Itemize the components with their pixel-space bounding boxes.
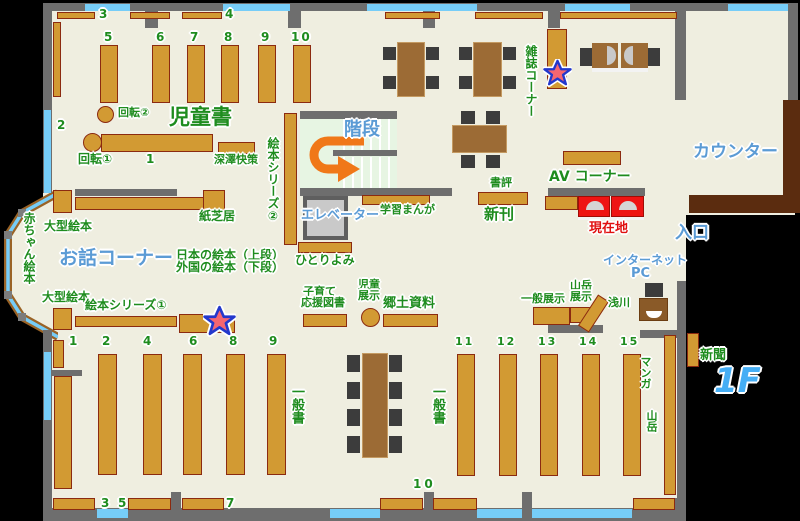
shelf-number: 9 (261, 31, 269, 43)
shelf-number: 6 (189, 335, 197, 347)
shelf-label-ippan-tenji: 一般展示 (521, 293, 565, 304)
pillar (171, 492, 181, 521)
shelf-label-gaikoku-ehon: 外国の絵本（下段） (176, 261, 284, 273)
pillar (522, 492, 532, 521)
area-label-internet: インターネット (603, 254, 687, 266)
chair (347, 382, 360, 399)
area-label-manga: マンガ (640, 356, 651, 389)
bookshelf (53, 498, 95, 510)
area-label-akachan-ehon: 赤ちゃん絵本 (23, 212, 35, 284)
chair (648, 48, 660, 66)
shelf-label-ogata-ehon: 大型絵本 (42, 291, 90, 303)
shelf-number: 15 (620, 336, 639, 347)
chair (389, 382, 402, 399)
bookshelf (143, 354, 162, 475)
bookshelf (100, 45, 118, 103)
shelf-number: 12 (497, 336, 516, 347)
bookshelf (75, 316, 177, 327)
bookshelf (130, 12, 170, 19)
display-rack (361, 308, 380, 327)
window (85, 4, 130, 11)
shelf-number: 11 (455, 336, 474, 347)
shelf-label-gakushu-manga: 学習まんが (380, 204, 435, 215)
chair (459, 76, 472, 89)
reading-table (452, 125, 507, 153)
shelf-number: 8 (229, 335, 237, 347)
chair (389, 409, 402, 426)
counter-room-floor (686, 3, 795, 215)
chair (461, 111, 475, 124)
area-label-iriguchi: 入口 (675, 225, 709, 242)
library-floor-map: 3 4 5 6 7 8 9 10 2 1 回転② 児童書 回転① 深澤快策 絵本… (0, 0, 800, 521)
area-label-elevator: エレベーター (301, 209, 379, 222)
bookshelf (540, 354, 558, 476)
shelf-number: 7 (190, 31, 198, 43)
bookshelf (560, 12, 677, 19)
bookshelf (383, 314, 438, 327)
bookshelf (258, 45, 276, 103)
area-label-counter: カウンター (693, 144, 778, 161)
shelf-number: 8 (224, 31, 232, 43)
star-marker-icon (543, 59, 572, 87)
counter-desk (689, 195, 800, 213)
shelf-label-ehon-series2: 絵本シリーズ② (267, 137, 279, 223)
bookshelf (128, 498, 171, 510)
study-table (362, 353, 388, 458)
bookshelf (152, 45, 170, 103)
bookshelf (545, 196, 578, 210)
wall-tenji (548, 325, 603, 333)
window (97, 509, 128, 518)
bookshelf (53, 340, 64, 368)
newspaper-rack (687, 333, 699, 367)
av-seat-icon (586, 201, 604, 210)
bookshelf (284, 113, 297, 245)
wall-kamishibai (75, 189, 177, 196)
shelf-number: 2 (102, 335, 110, 347)
shelf-label-kamishibai: 紙芝居 (199, 210, 235, 222)
bookshelf (380, 498, 423, 510)
rotating-rack (97, 106, 114, 123)
shelf-label-jido-tenji-2: 展示 (358, 290, 380, 301)
bookshelf (475, 12, 543, 19)
shelf-number: 13 (538, 336, 557, 347)
chair (347, 409, 360, 426)
shelf-number: 6 (156, 31, 164, 43)
av-partition (548, 188, 645, 196)
star-marker-icon (203, 305, 236, 337)
shelf-number: 5 (104, 31, 112, 43)
shelf-number: 14 (579, 336, 598, 347)
bookshelf (303, 314, 347, 327)
bookshelf (53, 190, 72, 213)
bookshelf (98, 354, 117, 475)
shelf-number: 2 (57, 119, 65, 131)
shelf-number: 5 (118, 497, 126, 509)
current-location-highlight (611, 196, 644, 217)
shelf-number: 3 (99, 8, 107, 20)
bookshelf (533, 307, 570, 325)
rotating-rack (83, 133, 102, 152)
bookshelf (293, 45, 311, 103)
pillar (548, 3, 560, 28)
bookshelf (53, 22, 61, 97)
window (44, 352, 51, 420)
bookshelf (57, 12, 95, 19)
bookshelf (478, 192, 528, 205)
chair (580, 48, 592, 66)
bookshelf (183, 354, 202, 475)
bookshelf (54, 376, 72, 489)
area-label-zasshi-corner: 雑誌コーナー (525, 45, 537, 117)
counter-desk (783, 100, 800, 197)
chair (389, 355, 402, 372)
area-label-sangaku: 山岳 (646, 410, 657, 432)
area-label-kaiten1: 回転① (78, 153, 112, 165)
chair (503, 76, 516, 89)
chair (383, 47, 396, 60)
shelf-label-shinkan: 新刊 (484, 207, 514, 222)
wall-right-top (788, 3, 798, 100)
bookshelf (499, 354, 517, 476)
wall-pc-corner (640, 330, 686, 338)
chair (426, 76, 439, 89)
wall-stairs-top (300, 111, 397, 119)
chair (461, 155, 475, 168)
bookshelf (101, 134, 213, 152)
bookshelf (226, 354, 245, 475)
window (477, 509, 522, 518)
bookshelf (633, 498, 675, 510)
window (532, 509, 632, 518)
shelf-number: 1 (146, 153, 154, 165)
shelf-label-shohyo: 書評 (490, 177, 512, 188)
current-location-highlight (578, 196, 610, 217)
area-label-ippansho-left: 一般書 (290, 385, 303, 424)
chair (426, 47, 439, 60)
shelf-label-ogata-ehon: 大型絵本 (44, 220, 92, 232)
window (565, 4, 630, 11)
bookshelf (203, 190, 225, 211)
window (367, 4, 477, 11)
shelf-label-sangaku-tenji-2: 展示 (570, 291, 592, 302)
area-label-ohanashi-corner: お話コーナー (59, 249, 173, 268)
window (44, 110, 51, 193)
shelf-number: 1 (69, 335, 77, 347)
shelf-number: 10 (413, 478, 436, 490)
av-seat-icon (619, 201, 637, 210)
shelf-number: 3 (101, 497, 109, 509)
shelf-label-asakawa: 浅川 (608, 297, 630, 308)
bookshelf (563, 151, 621, 165)
area-label-ippansho-right: 一般書 (431, 385, 444, 424)
chair (486, 111, 500, 124)
floor-label: 1F (714, 364, 761, 398)
bookshelf (182, 12, 222, 19)
bookshelf (267, 354, 286, 475)
bookshelf (457, 354, 475, 476)
chair (459, 47, 472, 60)
chair (383, 76, 396, 89)
bookshelf (582, 354, 600, 476)
shelf-number: 4 (143, 335, 151, 347)
chair (347, 355, 360, 372)
wall-right-lower (677, 281, 686, 521)
shelf-label-ehon-series1: 絵本シリーズ① (85, 299, 167, 311)
chair (486, 155, 500, 168)
window (330, 509, 380, 518)
area-label-av-corner: AV コーナー (549, 170, 631, 184)
white-ledge (578, 217, 644, 220)
bookshelf (298, 242, 352, 253)
area-label-jidosho: 児童書 (169, 107, 232, 128)
shelf-label-fukazawa: 深澤快策 (214, 154, 258, 165)
window (728, 4, 788, 11)
bookshelf (187, 45, 205, 103)
current-location-label: 現在地 (589, 222, 628, 235)
shelf-number: 4 (225, 8, 233, 20)
bookshelf (53, 308, 72, 330)
bookshelf (664, 335, 676, 495)
chair (347, 436, 360, 453)
reading-table (397, 42, 425, 97)
chair (503, 47, 516, 60)
reading-table (473, 42, 502, 97)
shelf-number: 10 (291, 31, 312, 43)
bookshelf (75, 197, 205, 210)
area-label-kaiten2: 回転② (118, 107, 149, 118)
shelf-number: 7 (226, 497, 234, 509)
pc-monitor-icon (645, 283, 663, 297)
bookshelf (182, 498, 224, 510)
area-label-kaidan: 階段 (344, 121, 380, 139)
bookshelf (221, 45, 239, 103)
shelf-number: 9 (269, 335, 277, 347)
bookshelf (433, 498, 477, 510)
bookshelf (385, 12, 440, 19)
white-ledge (592, 68, 648, 72)
area-label-pc: PC (631, 267, 650, 280)
shelf-label-kyodo-shiryo: 郷土資料 (383, 297, 435, 310)
shelf-label-kosodate-2: 応援図書 (301, 297, 345, 308)
chair (389, 436, 402, 453)
shelf-label-hitoriyomi: ひとりよみ (295, 254, 355, 266)
